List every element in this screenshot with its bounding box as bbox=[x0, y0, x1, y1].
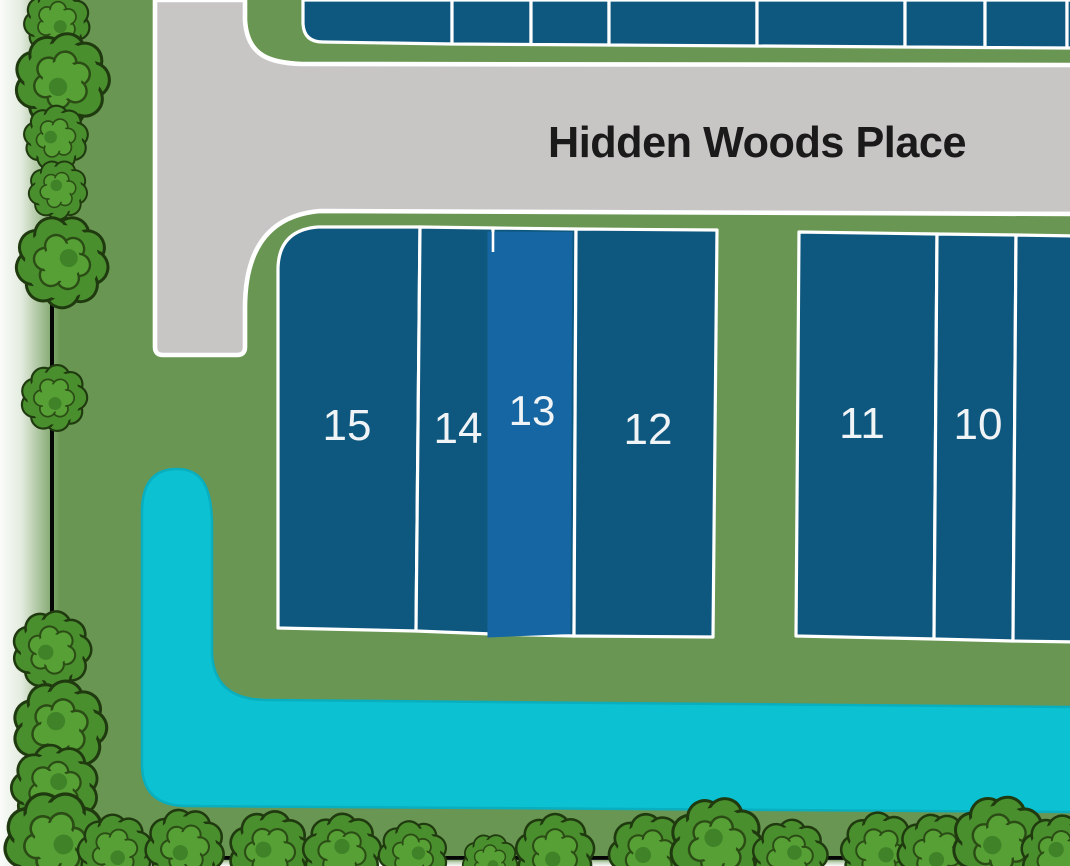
top-lot-shape-1[interactable] bbox=[303, 0, 452, 44]
top-lot-row bbox=[303, 0, 1070, 48]
lot-14-label: 14 bbox=[434, 404, 483, 453]
lot-10-label: 10 bbox=[954, 400, 1003, 449]
top-lot-shape-5[interactable] bbox=[757, 0, 905, 47]
top-lot-shape-3[interactable] bbox=[531, 0, 609, 45]
top-lot-shape-7[interactable] bbox=[985, 0, 1067, 48]
lot-11-label: 11 bbox=[839, 399, 885, 448]
lot-block-right bbox=[796, 232, 1070, 642]
street-name-label: Hidden Woods Place bbox=[548, 118, 966, 167]
lot-15-label: 15 bbox=[323, 401, 372, 450]
lot-13-label: 13 bbox=[509, 387, 556, 434]
lot-13-highlight[interactable] bbox=[488, 232, 573, 638]
top-lot-shape-4[interactable] bbox=[609, 0, 757, 46]
top-lot-shape-6[interactable] bbox=[905, 0, 985, 48]
top-lot-shape-2[interactable] bbox=[452, 0, 531, 45]
site-plan-map: Hidden Woods Place 15 14 13 12 11 10 9 bbox=[0, 0, 1070, 866]
lot-12-label: 12 bbox=[624, 405, 673, 454]
lot-9-shape[interactable] bbox=[1013, 235, 1070, 642]
